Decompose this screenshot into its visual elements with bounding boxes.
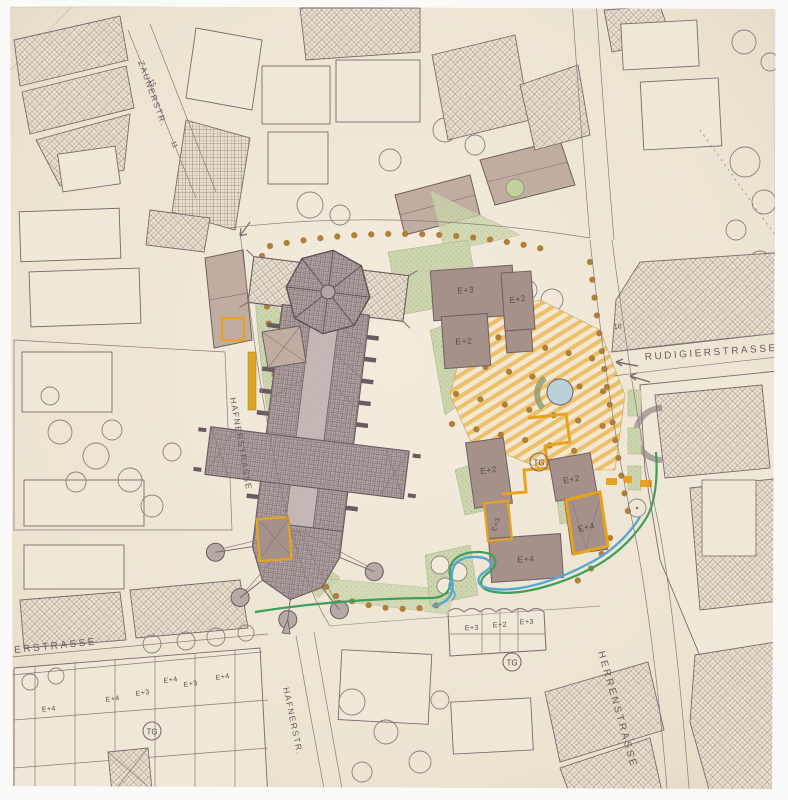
scan-background: RUDIGIERSTRASSE HERRENSTRASSE HAFNERSTRA… [0, 0, 788, 800]
site-plan-map: RUDIGIERSTRASSE HERRENSTRASSE HAFNERSTRA… [0, 0, 788, 800]
building-label: E+3 [520, 619, 535, 627]
garage-label: TG [506, 659, 517, 668]
building-label: E+2 [455, 335, 473, 346]
south-row-building [448, 608, 546, 656]
garage-label: TG [533, 459, 544, 468]
building-label: E+3 [465, 625, 480, 633]
building-label: E+4 [517, 553, 535, 564]
building-label: E+2 [493, 622, 508, 630]
fountain [547, 379, 573, 405]
house-number: 10 [614, 323, 622, 331]
garage-label: TG [146, 728, 157, 737]
southwest-block [14, 648, 268, 800]
building-label: E+4 [42, 705, 57, 713]
intervention-bar [248, 352, 256, 410]
building-label: E+3 [457, 284, 475, 295]
